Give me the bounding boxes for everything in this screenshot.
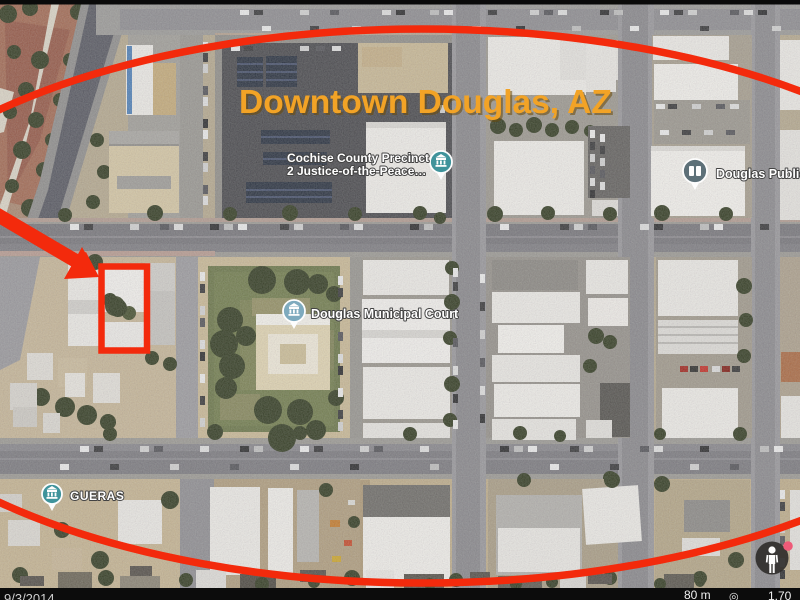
svg-text:Downtown Douglas, AZ: Downtown Douglas, AZ <box>239 84 612 121</box>
svg-text:GUERAS: GUERAS <box>70 489 124 503</box>
svg-text:◎: ◎ <box>729 591 739 600</box>
svg-text:9/3/2014: 9/3/2014 <box>4 591 55 600</box>
svg-text:Cochise County Precinct: Cochise County Precinct <box>287 151 429 165</box>
svg-text:Douglas Municipal Court: Douglas Municipal Court <box>311 307 459 321</box>
svg-text:80 m: 80 m <box>684 588 711 600</box>
svg-text:Douglas Public: Douglas Public <box>716 167 800 181</box>
svg-text:1,70: 1,70 <box>768 589 792 600</box>
svg-text:2 Justice-of-the-Peace…: 2 Justice-of-the-Peace… <box>287 164 426 178</box>
